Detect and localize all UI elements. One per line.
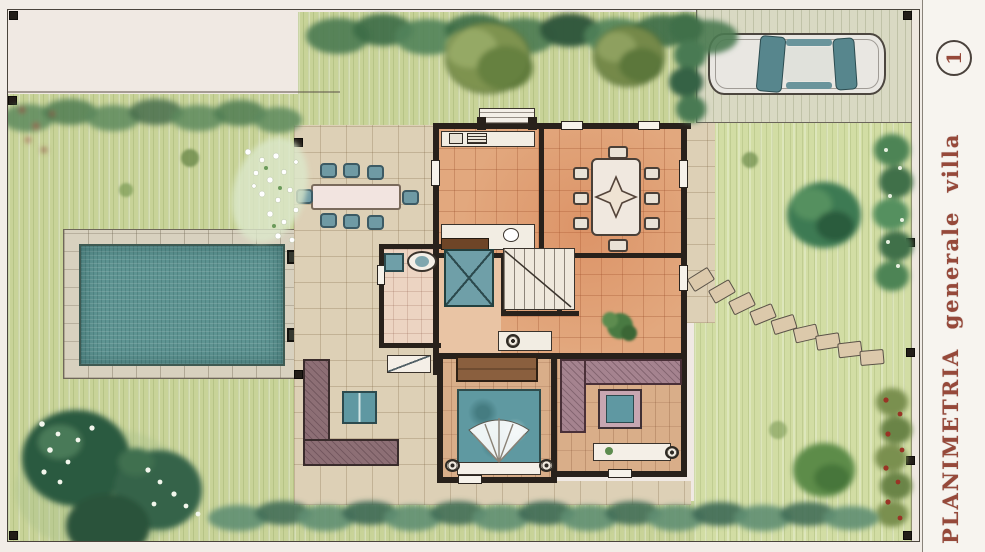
patio-table <box>311 184 401 210</box>
window <box>458 475 482 484</box>
fence-post <box>906 348 915 357</box>
dining-chair <box>573 192 589 205</box>
wall-stairs-south <box>501 311 579 316</box>
dining-chair <box>573 217 589 230</box>
window <box>561 121 583 130</box>
entry-jamb <box>528 117 537 130</box>
patio-chair <box>343 214 360 229</box>
patio-chair <box>296 189 313 204</box>
wall-bedroom-west <box>437 353 443 483</box>
swimming-pool <box>79 244 285 366</box>
entry-jamb <box>477 117 486 130</box>
wardrobe <box>456 356 538 382</box>
car <box>708 24 894 104</box>
fence-post <box>906 456 915 465</box>
wall-bedroom-south <box>437 477 557 483</box>
dining-chair <box>644 167 660 180</box>
dining-chair <box>644 217 660 230</box>
window <box>431 160 440 186</box>
car-rear-window <box>832 37 858 90</box>
door-east <box>679 265 688 291</box>
window <box>608 469 632 478</box>
coffee-table-top <box>606 395 634 423</box>
plan-drawing-area <box>7 9 920 542</box>
console-ornament <box>506 334 520 348</box>
fence-post <box>8 96 17 105</box>
dining-chair <box>573 167 589 180</box>
wall-bath-south <box>379 343 441 348</box>
sheet-number-circle: 1 <box>936 40 972 76</box>
bedside-table <box>539 459 554 472</box>
fence-post <box>294 370 303 379</box>
bath-sink <box>384 253 404 272</box>
patio-chair <box>320 163 337 178</box>
car-windshield <box>756 35 787 93</box>
bedside-table <box>445 459 460 472</box>
staircase <box>503 248 575 310</box>
fence-post <box>294 138 303 147</box>
sheet-number: 1 <box>938 51 970 65</box>
fence-post <box>903 531 912 540</box>
kitchen-sink <box>503 228 519 242</box>
dining-chair <box>608 146 628 159</box>
patio-chair <box>402 190 419 205</box>
kitchen-appliance <box>449 133 463 144</box>
site-plan-sheet: 1 PLANIMETRIA generale villa <box>0 0 985 552</box>
lounge-sofa-left <box>560 359 586 433</box>
car-side-window-top <box>786 39 832 46</box>
stepping-stone <box>859 349 884 366</box>
kitchen-cooktop-grill <box>467 133 487 144</box>
car-side-window-bottom <box>786 82 832 89</box>
lounge-ornament <box>665 446 679 459</box>
parking-area <box>696 10 912 123</box>
window <box>679 160 688 188</box>
dining-chair <box>644 192 660 205</box>
outdoor-bench-table <box>342 391 377 424</box>
sheet-margin: 1 PLANIMETRIA generale villa <box>922 0 985 552</box>
dining-chair <box>608 239 628 252</box>
patio-chair <box>320 213 337 228</box>
fence-post <box>903 11 912 20</box>
wall-bath-north <box>379 244 441 249</box>
wall-kitchen-dining <box>539 129 544 253</box>
lounge-shelf <box>593 443 671 461</box>
dining-table <box>591 158 641 236</box>
patio-chair <box>367 215 384 230</box>
front-boundary-line <box>8 91 340 93</box>
fence-post <box>906 238 915 247</box>
car-roof <box>784 47 834 81</box>
entry-steps <box>479 108 535 124</box>
outdoor-bench-horizontal <box>303 439 399 466</box>
double-bed <box>457 389 541 465</box>
shower <box>444 249 494 307</box>
fence-post <box>9 531 18 540</box>
doormat <box>387 355 431 373</box>
sheet-title: PLANIMETRIA generale villa <box>938 112 963 544</box>
bed-foot-bench <box>457 462 541 475</box>
patio-chair <box>367 165 384 180</box>
patio-chair <box>343 163 360 178</box>
south-terrace <box>294 481 691 505</box>
window <box>638 121 660 130</box>
bath-basin-bowl <box>415 256 429 267</box>
fence-post <box>9 11 18 20</box>
south-lawn <box>294 501 694 542</box>
